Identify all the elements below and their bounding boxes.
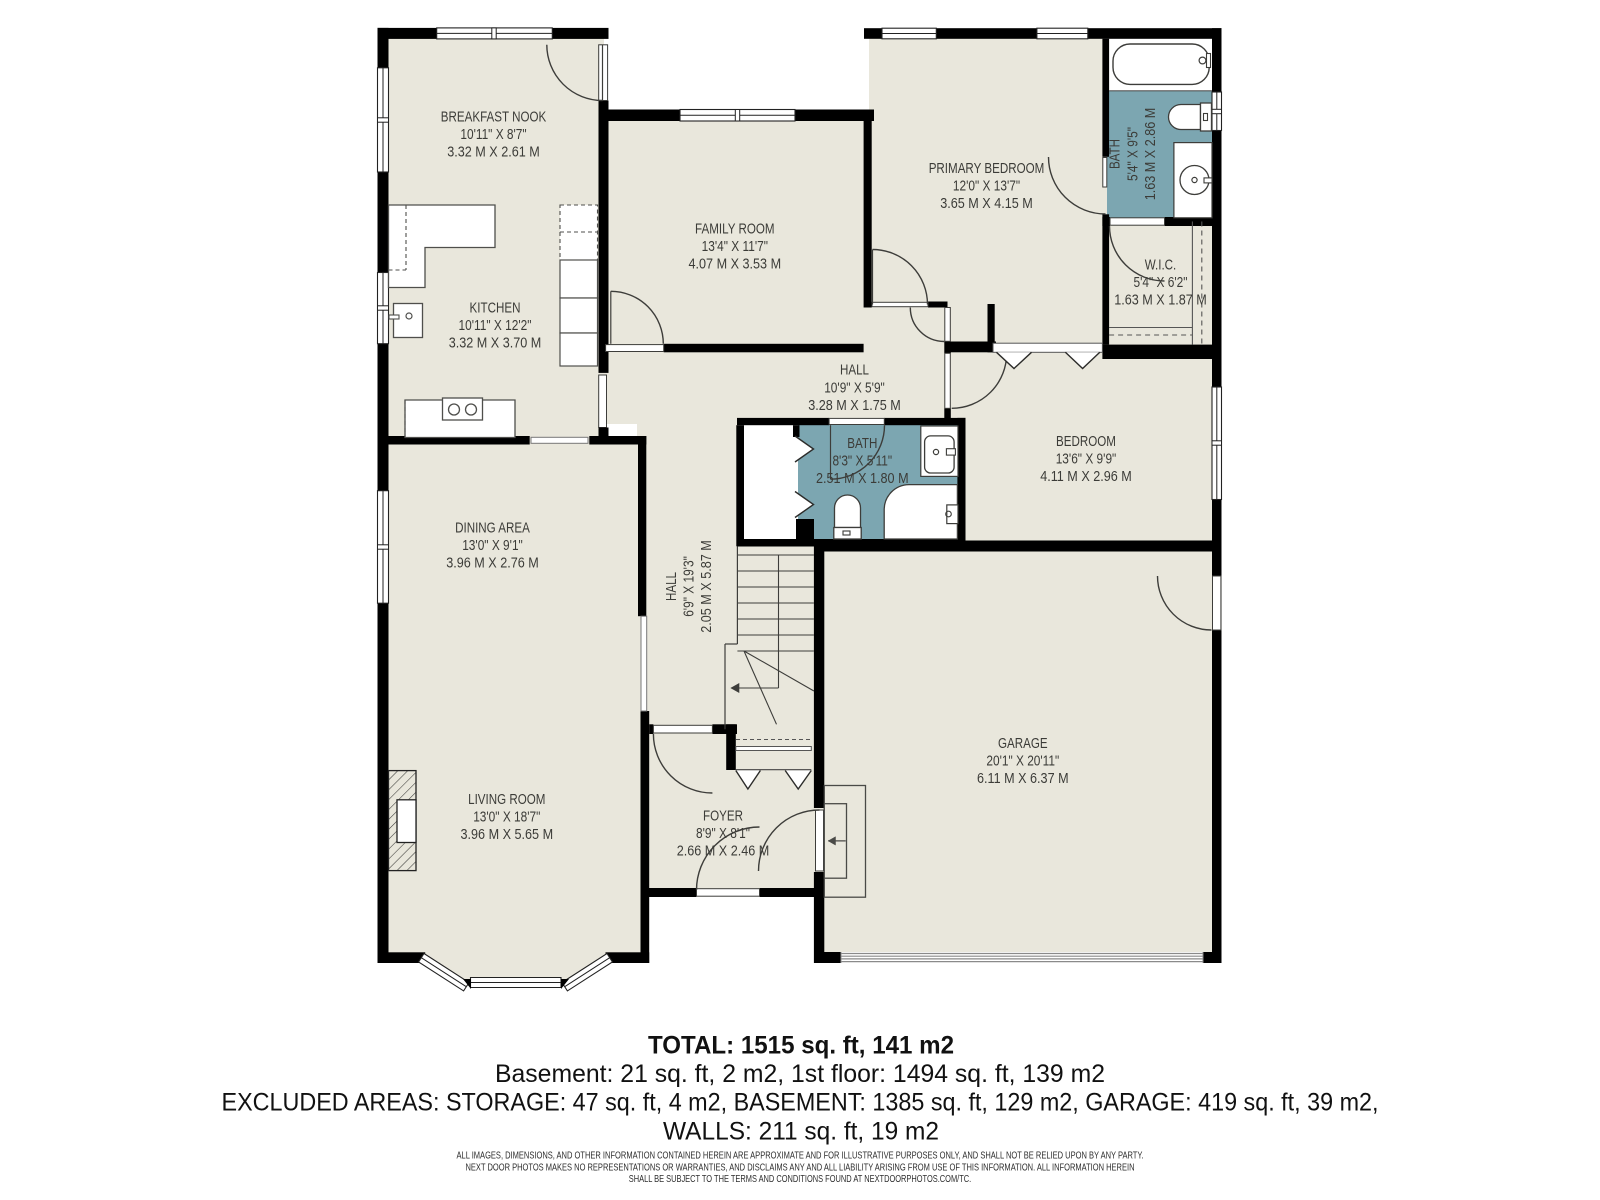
svg-text:3.32 M X 3.70 M: 3.32 M X 3.70 M — [449, 336, 542, 352]
svg-text:13'0" X 18'7": 13'0" X 18'7" — [473, 810, 540, 826]
svg-text:8'3" X 5'11": 8'3" X 5'11" — [832, 454, 892, 470]
svg-text:5'4" X 9'5": 5'4" X 9'5" — [1125, 127, 1141, 181]
svg-text:BEDROOM: BEDROOM — [1056, 434, 1116, 450]
svg-text:3.65 M X 4.15 M: 3.65 M X 4.15 M — [940, 196, 1033, 212]
svg-text:DINING AREA: DINING AREA — [455, 520, 530, 536]
svg-text:3.32 M X 2.61 M: 3.32 M X 2.61 M — [447, 145, 540, 161]
svg-text:1.63 M X 1.87 M: 1.63 M X 1.87 M — [1114, 293, 1207, 309]
svg-text:10'11" X 12'2": 10'11" X 12'2" — [459, 318, 532, 334]
svg-text:FOYER: FOYER — [703, 809, 743, 825]
svg-text:8'9" X 8'1": 8'9" X 8'1" — [696, 826, 750, 842]
svg-text:ALL IMAGES, DIMENSIONS, AND OT: ALL IMAGES, DIMENSIONS, AND OTHER INFORM… — [457, 1150, 1144, 1162]
svg-text:13'0" X 9'1": 13'0" X 9'1" — [462, 538, 523, 554]
svg-text:BATH: BATH — [847, 436, 877, 452]
svg-text:10'9" X 5'9": 10'9" X 5'9" — [824, 380, 885, 396]
svg-text:6.11 M X 6.37 M: 6.11 M X 6.37 M — [977, 771, 1069, 787]
svg-text:3.28 M X 1.75 M: 3.28 M X 1.75 M — [808, 398, 901, 414]
svg-text:2.66 M X 2.46 M: 2.66 M X 2.46 M — [677, 844, 770, 860]
svg-text:Basement: 21 sq. ft, 2 m2, 1st: Basement: 21 sq. ft, 2 m2, 1st floor: 14… — [495, 1060, 1105, 1088]
svg-text:TOTAL: 1515 sq. ft, 141 m2: TOTAL: 1515 sq. ft, 141 m2 — [648, 1032, 954, 1060]
svg-text:13'6" X 9'9": 13'6" X 9'9" — [1056, 451, 1117, 467]
svg-text:LIVING ROOM: LIVING ROOM — [468, 792, 545, 808]
svg-text:10'11" X 8'7": 10'11" X 8'7" — [460, 127, 526, 143]
svg-text:WALLS: 211 sq. ft, 19 m2: WALLS: 211 sq. ft, 19 m2 — [663, 1118, 939, 1146]
svg-text:2.05 M X 5.87 M: 2.05 M X 5.87 M — [699, 540, 715, 633]
svg-text:3.96 M X 2.76 M: 3.96 M X 2.76 M — [446, 556, 539, 572]
svg-text:FAMILY ROOM: FAMILY ROOM — [695, 222, 775, 238]
svg-text:HALL: HALL — [664, 572, 680, 601]
svg-text:1.63 M X 2.86 M: 1.63 M X 2.86 M — [1143, 108, 1159, 201]
svg-text:2.51 M X 1.80 M: 2.51 M X 1.80 M — [816, 471, 909, 487]
svg-text:BATH: BATH — [1108, 139, 1124, 169]
svg-text:4.11 M X 2.96 M: 4.11 M X 2.96 M — [1040, 469, 1132, 485]
svg-text:20'1" X 20'11": 20'1" X 20'11" — [986, 754, 1059, 770]
svg-text:4.07 M X 3.53 M: 4.07 M X 3.53 M — [689, 257, 782, 273]
svg-text:PRIMARY BEDROOM: PRIMARY BEDROOM — [929, 161, 1045, 177]
svg-text:W.I.C.: W.I.C. — [1145, 257, 1177, 273]
svg-text:NEXT DOOR PHOTOS MAKES NO REPR: NEXT DOOR PHOTOS MAKES NO REPRESENTATION… — [466, 1162, 1135, 1174]
svg-text:3.96 M X 5.65 M: 3.96 M X 5.65 M — [461, 827, 554, 843]
svg-text:BREAKFAST NOOK: BREAKFAST NOOK — [441, 110, 547, 126]
svg-text:KITCHEN: KITCHEN — [470, 301, 521, 317]
svg-text:13'4" X 11'7": 13'4" X 11'7" — [702, 239, 768, 255]
svg-text:SHALL BE SUBJECT TO THE TERMS: SHALL BE SUBJECT TO THE TERMS AND CONDIT… — [629, 1173, 972, 1185]
svg-text:5'4" X 6'2": 5'4" X 6'2" — [1134, 275, 1188, 291]
svg-text:GARAGE: GARAGE — [998, 736, 1048, 752]
svg-text:EXCLUDED AREAS: STORAGE: 47 sq: EXCLUDED AREAS: STORAGE: 47 sq. ft, 4 m2… — [222, 1089, 1379, 1117]
svg-text:12'0" X 13'7": 12'0" X 13'7" — [953, 178, 1020, 194]
svg-text:6'9" X 19'3": 6'9" X 19'3" — [682, 556, 698, 617]
svg-text:HALL: HALL — [840, 363, 869, 379]
